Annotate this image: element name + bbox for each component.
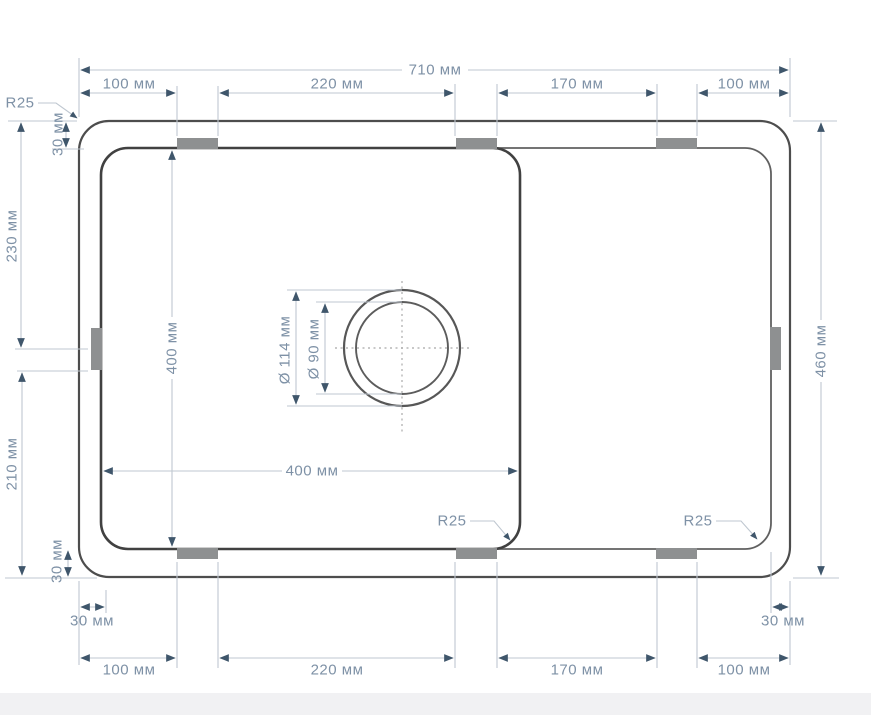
dim-bottom-segment-3: 170 мм [499,658,655,679]
drawing-canvas: 710 мм 100 мм 220 мм 170 мм 100 мм 30 мм… [0,0,871,715]
radius-label: R25 [5,95,34,112]
dim-label: 100 мм [103,76,156,93]
mounting-tab-right [770,327,781,370]
dim-bottom-segment-1: 100 мм [81,658,175,679]
dim-edge-inset-bottom-right: 30 мм [761,607,805,630]
dim-label: 460 мм [813,325,830,378]
dim-rim-bottom-left: 30 мм [49,539,69,583]
dim-edge-inset-bottom-left: 30 мм [70,607,114,630]
mounting-tab-top-right [656,138,697,149]
dim-label: 100 мм [718,76,771,93]
dim-label: 210 мм [4,438,21,491]
mounting-tab-bottom-right [656,548,697,559]
dim-left-lower: 210 мм [4,373,23,575]
dim-rim-top-left: 30 мм [50,112,67,156]
dim-bottom-segment-4: 100 мм [699,658,788,679]
bottom-strip [0,693,871,715]
radius-label-bottom-center: R25 [437,513,510,541]
dim-label: 100 мм [103,662,156,679]
mounting-tab-bottom-left [177,548,218,559]
sink-outlines [79,121,790,577]
dim-label: 30 мм [761,613,805,630]
sink-dimension-drawing: 710 мм 100 мм 220 мм 170 мм 100 мм 30 мм… [0,0,871,715]
dim-left-upper: 230 мм [4,123,22,347]
dim-top-segment-4: 100 мм [699,76,788,94]
dim-drain-outer-diameter: Ø 114 мм [277,292,297,404]
dim-label: 30 мм [70,613,114,630]
dim-bottom-segment-2: 220 мм [220,658,453,679]
dim-label: 400 мм [286,463,339,480]
dim-label: 220 мм [311,662,364,679]
dim-overall-width: 710 мм [81,61,788,79]
dim-label: 170 мм [551,662,604,679]
dim-label: 400 мм [164,322,181,375]
dim-label: 30 мм [49,539,66,583]
dim-bowl-depth: 400 мм [163,151,181,546]
dim-label: 100 мм [718,662,771,679]
mounting-tab-bottom-center [456,548,497,559]
dim-bowl-width: 400 мм [104,462,517,480]
dim-label: Ø 114 мм [277,316,294,385]
dim-label: 230 мм [4,210,21,263]
dim-label: 30 мм [50,112,67,156]
mounting-tab-top-left [177,138,218,149]
dim-overall-height: 460 мм [812,123,830,575]
dim-top-segment-3: 170 мм [499,76,655,94]
radius-label: R25 [683,513,712,530]
sink-outer-outline [79,121,790,577]
dim-drain-inner-diameter: Ø 90 мм [306,304,326,392]
radius-label: R25 [437,513,466,530]
dim-label: 220 мм [311,76,364,93]
dim-label-overall-width: 710 мм [409,62,462,79]
mounting-tab-left [91,328,102,370]
mounting-tab-top-center [456,138,497,149]
dim-label: Ø 90 мм [306,319,323,380]
dim-label: 170 мм [551,76,604,93]
dim-top-segment-1: 100 мм [81,76,175,94]
radius-label-bottom-right: R25 [683,513,757,540]
